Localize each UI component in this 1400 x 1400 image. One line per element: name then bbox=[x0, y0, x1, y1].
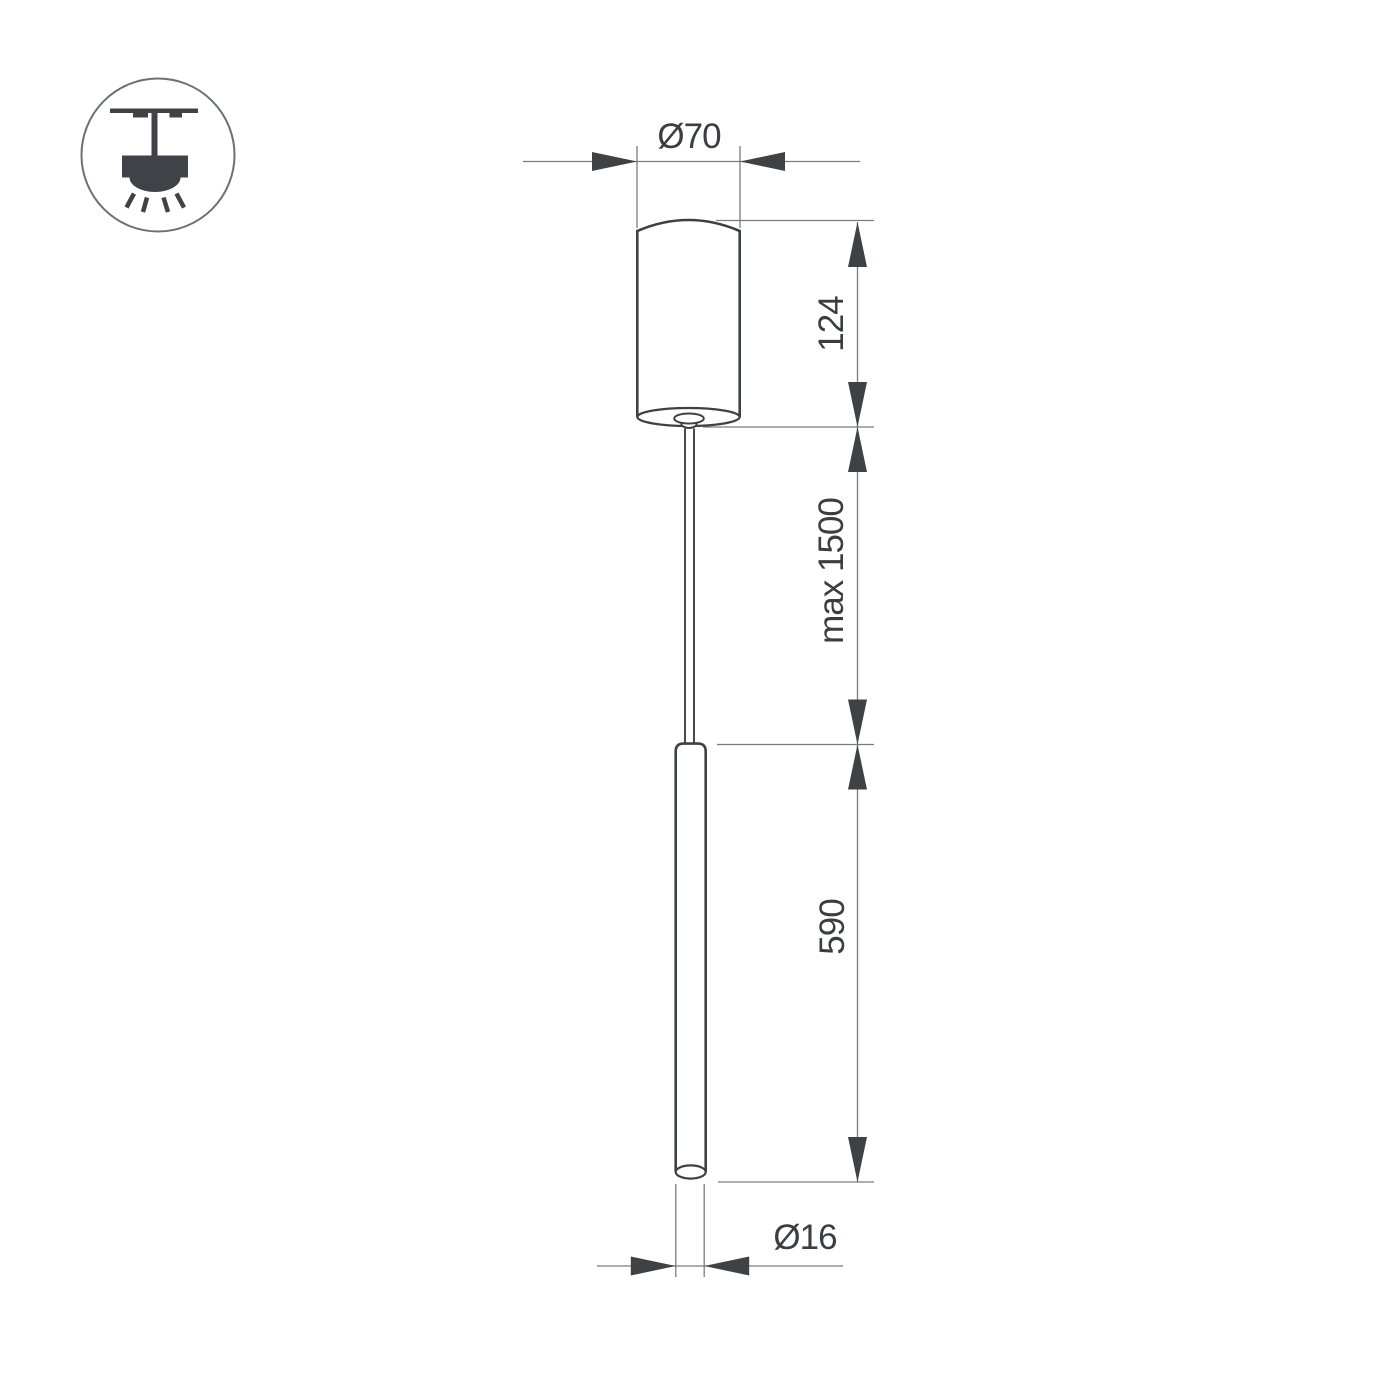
canopy-body bbox=[637, 220, 739, 417]
ray-3 bbox=[164, 198, 169, 213]
mount-tab-left bbox=[133, 113, 148, 118]
pendant-mount-icon bbox=[82, 79, 235, 232]
lamp-drawing bbox=[637, 220, 739, 1179]
light-rays bbox=[127, 194, 185, 213]
light-dome bbox=[130, 178, 181, 193]
tube-body bbox=[676, 744, 706, 1172]
ceiling-line bbox=[110, 109, 198, 114]
arrow-590-bottom bbox=[848, 1137, 867, 1182]
label-suspension-length: max 1500 bbox=[812, 421, 852, 721]
arrow-tube-dia-left bbox=[631, 1257, 676, 1276]
pendant-glyph bbox=[110, 109, 198, 193]
mount-stem bbox=[152, 113, 158, 158]
arrow-tube-dia-right bbox=[704, 1257, 749, 1276]
label-canopy-diameter: Ø70 bbox=[539, 117, 839, 157]
mount-tab-right bbox=[170, 113, 183, 118]
lamp-body bbox=[122, 156, 188, 178]
ray-4 bbox=[177, 194, 185, 208]
ray-1 bbox=[127, 194, 135, 208]
label-tube-diameter: Ø16 bbox=[655, 1218, 955, 1258]
wire-fitting-rim bbox=[674, 414, 704, 424]
icon-circle bbox=[82, 79, 235, 232]
ray-2 bbox=[143, 198, 147, 213]
label-tube-length: 590 bbox=[813, 777, 853, 1077]
tube-bottom-rim bbox=[676, 1165, 706, 1178]
diagram-canvas bbox=[0, 0, 1400, 1400]
drawing-page: { "page": { "background": "#ffffff", "de… bbox=[0, 0, 1400, 1400]
